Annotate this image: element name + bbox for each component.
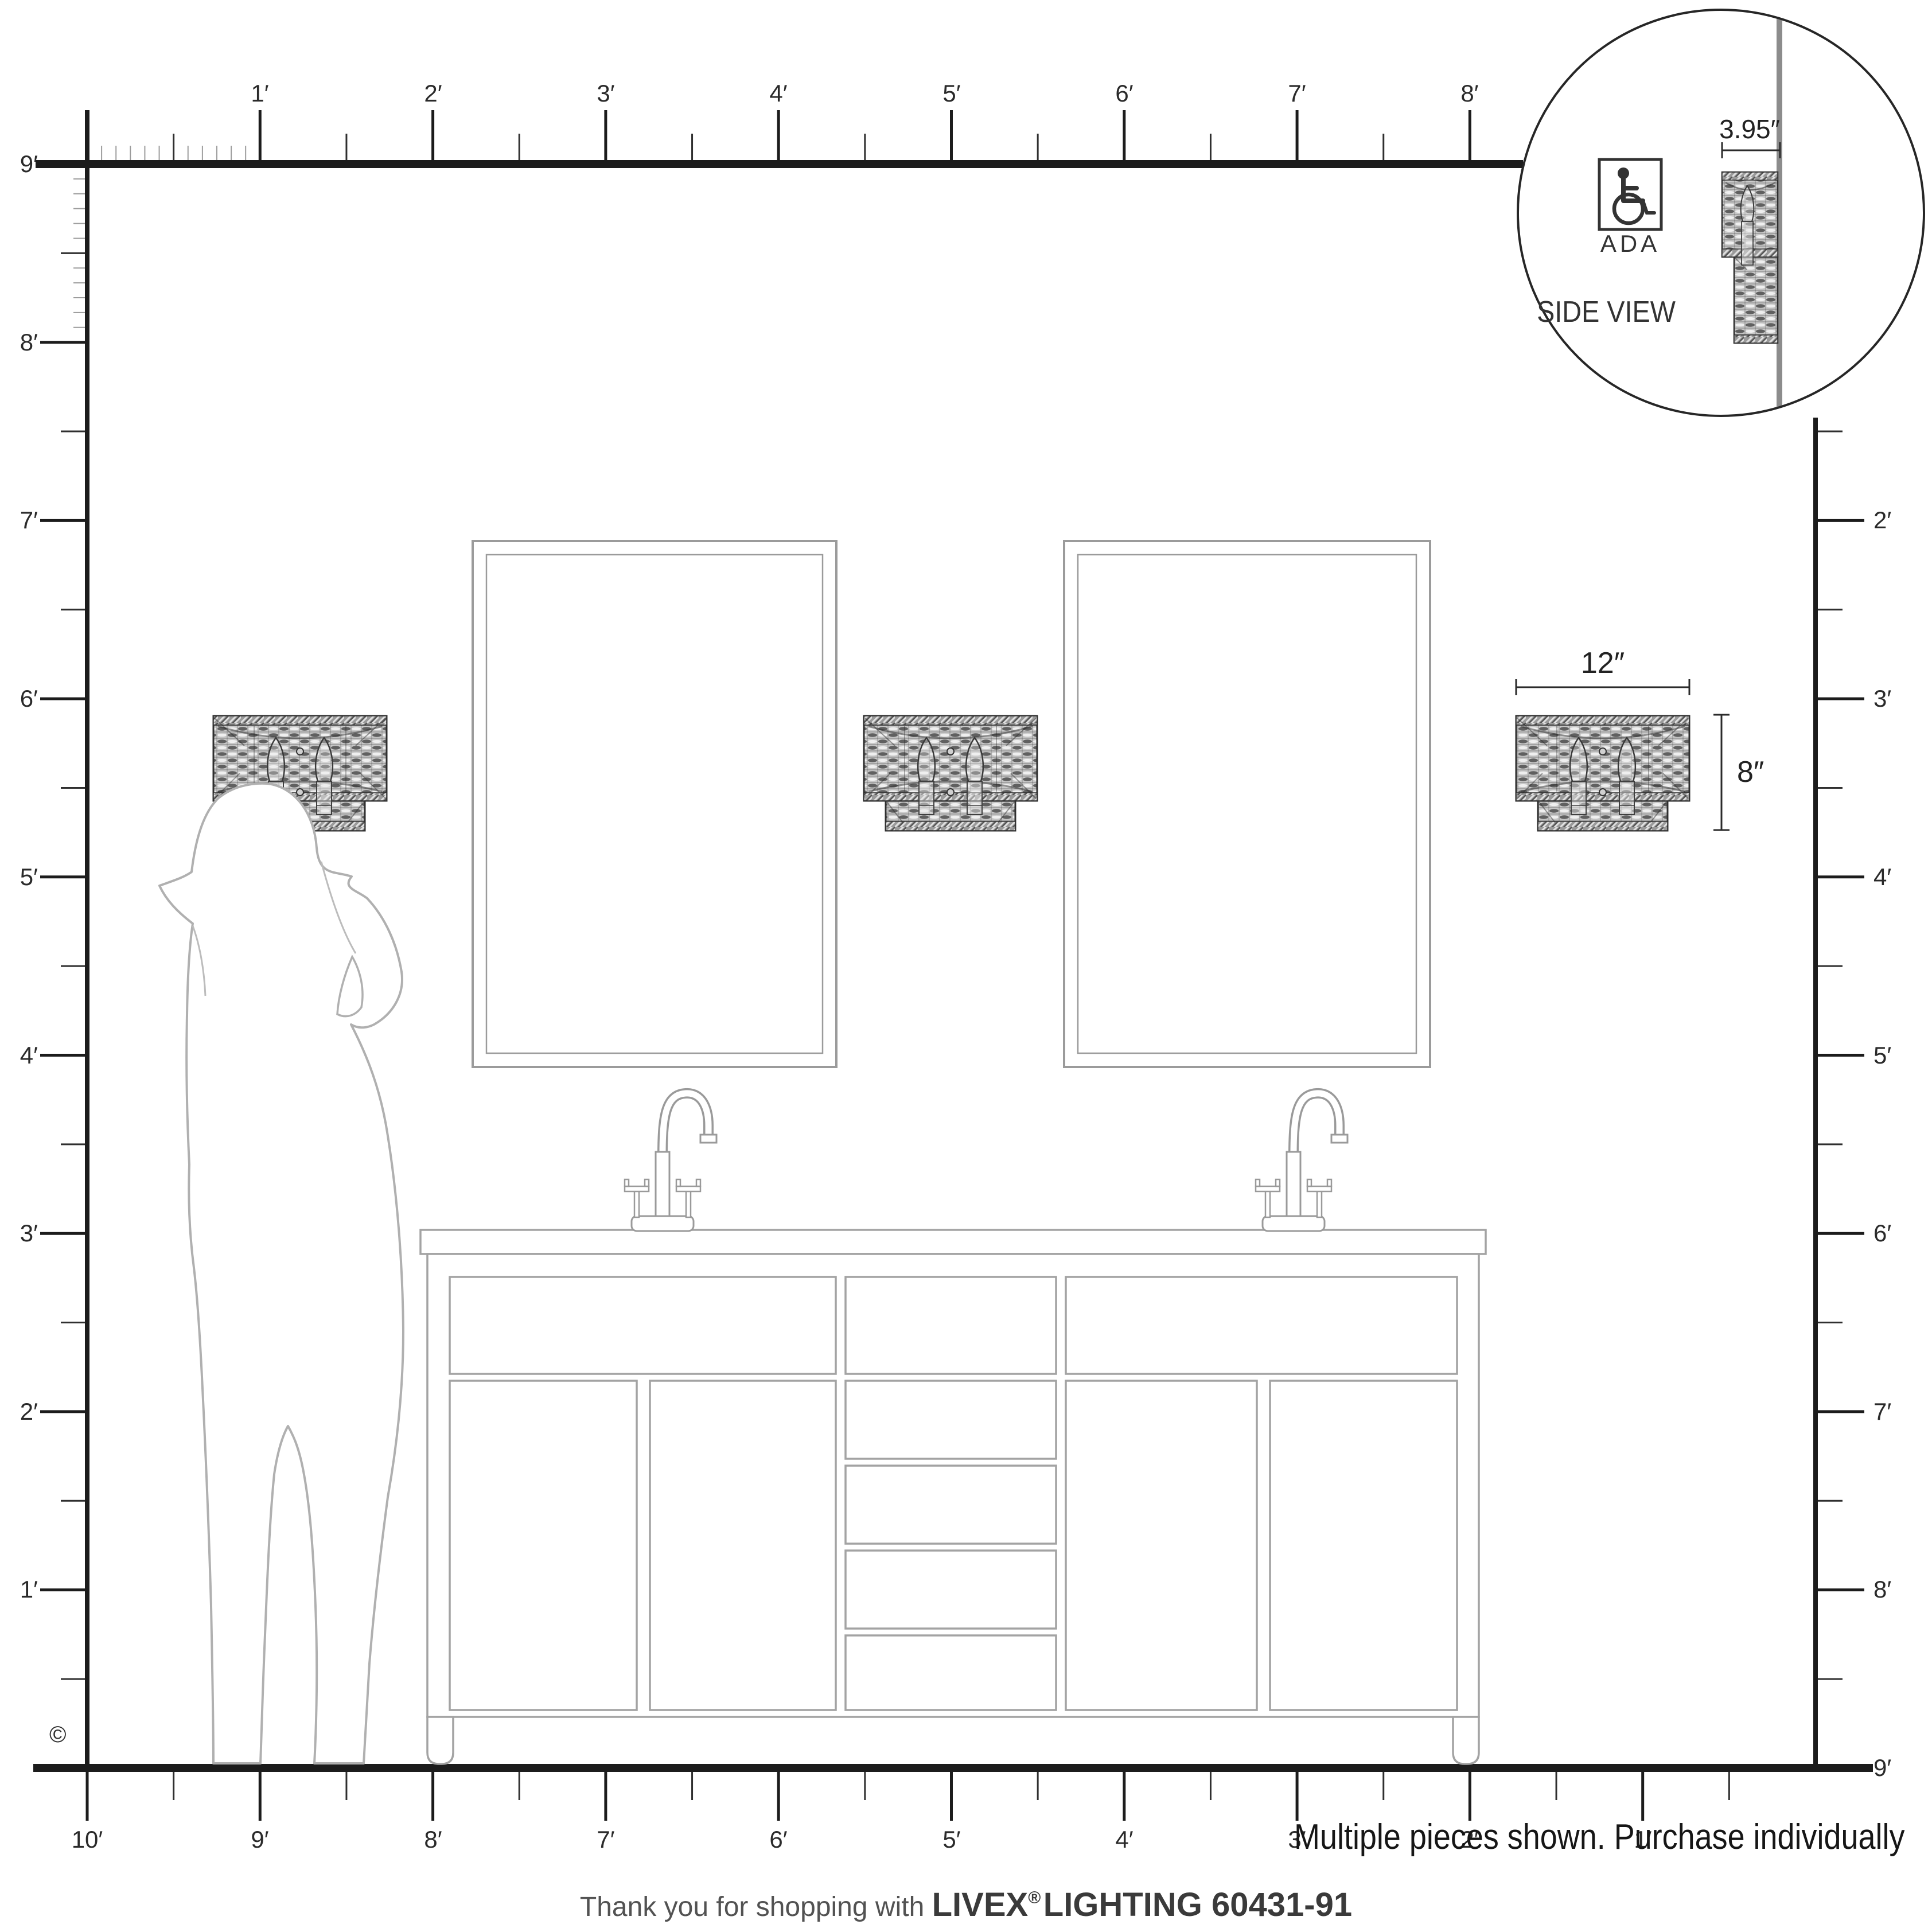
left-ruler-label: 9′ xyxy=(0,152,38,176)
ceiling-line xyxy=(36,160,1523,168)
vanity-countertop xyxy=(420,1230,1486,1254)
faucet xyxy=(1256,1093,1347,1231)
bottom-ruler-label: 10′ xyxy=(72,1828,103,1852)
diagram-stage: 1′ 2′ 3′ 4′ 5′ 6′ 7′ 8′ 9′ 8′ 7′ 6′ 5′ 4… xyxy=(0,0,1932,1932)
bottom-ruler-label: 5′ xyxy=(942,1828,960,1852)
left-ruler-label: 1′ xyxy=(0,1577,38,1602)
faucets xyxy=(625,1093,1347,1231)
vanity-drawer-4 xyxy=(846,1635,1056,1710)
mirror-left xyxy=(473,541,836,1067)
bottom-ruler-label: 6′ xyxy=(769,1828,787,1852)
top-ruler-label: 3′ xyxy=(597,81,614,106)
footer-brand-line: Thank you for shopping with LIVEX® LIGHT… xyxy=(0,1888,1932,1922)
top-ruler-label: 1′ xyxy=(251,81,268,106)
depth-dimension-label: 3.95″ xyxy=(1719,116,1780,142)
footer-brand-name: LIVEX xyxy=(932,1886,1029,1923)
ada-icon xyxy=(1599,159,1661,229)
vanity-leg-right xyxy=(1453,1717,1479,1764)
ada-label: ADA xyxy=(1600,232,1660,256)
mirror-right xyxy=(1064,541,1430,1067)
right-ruler-ticks xyxy=(1818,431,1864,1679)
bottom-ruler-label: 7′ xyxy=(597,1828,614,1852)
left-ruler-ticks xyxy=(40,179,85,1679)
width-dimension-label: 12″ xyxy=(1581,648,1625,678)
top-ruler-ticks xyxy=(102,110,1470,160)
vanity-door-2 xyxy=(650,1381,836,1710)
left-ruler-label: 5′ xyxy=(0,865,38,889)
floor-line xyxy=(33,1764,1873,1772)
top-ruler-label: 6′ xyxy=(1115,81,1133,106)
left-ruler-label: 3′ xyxy=(0,1221,38,1245)
woman-silhouette xyxy=(159,784,403,1763)
vanity-cabinet xyxy=(420,1230,1486,1764)
bottom-ruler-label: 8′ xyxy=(424,1828,442,1852)
wall-sconces xyxy=(213,716,1689,831)
left-ruler-label: 4′ xyxy=(0,1043,38,1068)
right-ruler-label: 9′ xyxy=(1873,1756,1891,1780)
purchase-note: Multiple pieces shown. Purchase individu… xyxy=(1294,1820,1904,1855)
left-ruler-label: 8′ xyxy=(0,330,38,355)
left-ruler-label: 7′ xyxy=(0,508,38,532)
side-view-inset xyxy=(1518,10,1924,419)
bottom-ruler-label: 4′ xyxy=(1115,1828,1133,1852)
height-dimension-label: 8″ xyxy=(1737,757,1764,787)
vanity-leg-left xyxy=(427,1717,453,1764)
registered-mark: ® xyxy=(1028,1888,1041,1907)
faucet xyxy=(625,1093,716,1231)
top-ruler-label: 4′ xyxy=(769,81,787,106)
left-ruler-label: 6′ xyxy=(0,687,38,711)
left-wall-line xyxy=(85,110,89,1768)
top-ruler-label: 2′ xyxy=(424,81,442,106)
footer-thanks-text: Thank you for shopping with xyxy=(580,1892,932,1922)
vanity-door-1 xyxy=(450,1381,637,1710)
vanity-drawer-3 xyxy=(846,1551,1056,1629)
right-ruler-label: 7′ xyxy=(1873,1400,1891,1424)
bottom-ruler-ticks xyxy=(87,1772,1729,1821)
right-ruler-label: 4′ xyxy=(1873,865,1891,889)
right-wall-line xyxy=(1813,418,1818,1768)
vanity-top-drawer-middle xyxy=(846,1277,1056,1374)
footer-product-number: LIGHTING 60431-91 xyxy=(1043,1886,1352,1923)
top-ruler-label: 5′ xyxy=(942,81,960,106)
vanity-top-drawer-left xyxy=(450,1277,836,1374)
vanity-top-drawer-right xyxy=(1066,1277,1457,1374)
vanity-door-4 xyxy=(1270,1381,1457,1710)
bottom-ruler-label: 9′ xyxy=(251,1828,268,1852)
copyright-symbol: © xyxy=(49,1723,66,1746)
line-art xyxy=(0,0,1932,1932)
top-ruler-label: 7′ xyxy=(1288,81,1306,106)
right-ruler-label: 3′ xyxy=(1873,687,1891,711)
left-ruler-label: 2′ xyxy=(0,1400,38,1424)
vanity-door-3 xyxy=(1066,1381,1257,1710)
right-ruler-label: 6′ xyxy=(1873,1221,1891,1245)
right-ruler-label: 5′ xyxy=(1873,1043,1891,1068)
sconce-front xyxy=(864,716,1037,831)
sconce-front xyxy=(1516,716,1689,831)
vanity-drawer-2 xyxy=(846,1466,1056,1544)
top-ruler-label: 8′ xyxy=(1460,81,1478,106)
right-ruler-label: 8′ xyxy=(1873,1577,1891,1602)
right-ruler-label: 2′ xyxy=(1873,508,1891,532)
side-view-title: SIDE VIEW xyxy=(1537,297,1676,327)
vanity-drawer-1 xyxy=(846,1381,1056,1459)
